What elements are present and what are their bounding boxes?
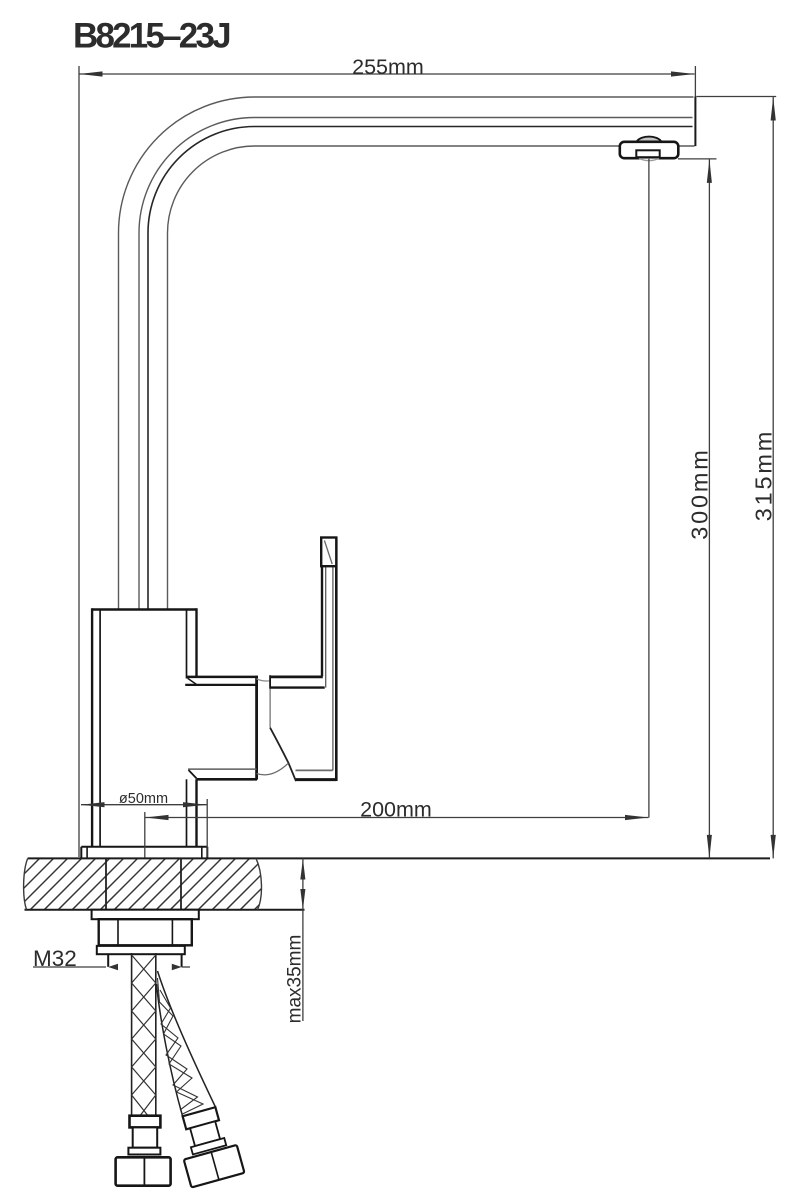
svg-text:B8215–23J: B8215–23J [73,17,230,56]
svg-text:315mm: 315mm [751,429,777,521]
svg-text:M32: M32 [33,946,77,971]
svg-text:255mm: 255mm [352,55,424,79]
svg-text:ø50mm: ø50mm [119,791,168,807]
svg-text:max35mm: max35mm [285,935,306,1024]
svg-text:300mm: 300mm [687,447,713,539]
svg-text:200mm: 200mm [360,798,432,822]
